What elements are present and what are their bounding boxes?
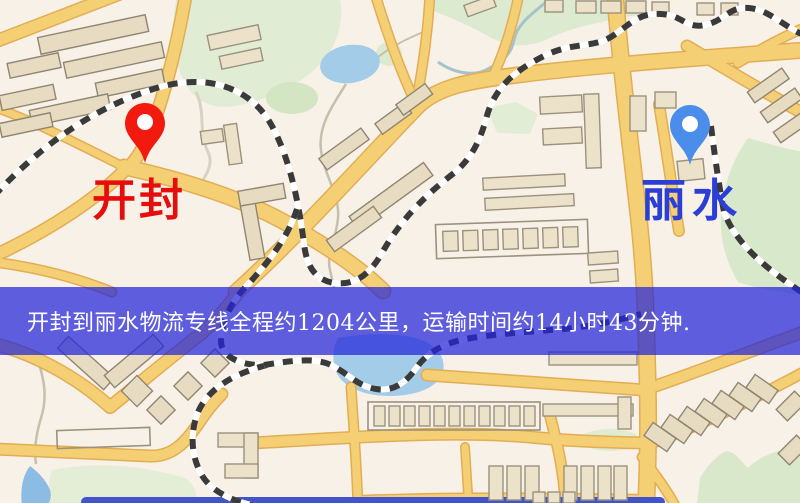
destination-city-label: 丽水 bbox=[641, 178, 743, 223]
logistics-route-map: 开封 丽水 开封到丽水物流专线全程约1204公里，运输时间约14小时43分钟. bbox=[0, 0, 800, 503]
destination-marker-pin bbox=[668, 103, 712, 167]
map-pin-icon bbox=[123, 101, 167, 165]
route-info-text: 开封到丽水物流专线全程约1204公里，运输时间约14小时43分钟. bbox=[27, 305, 690, 337]
map-canvas bbox=[0, 0, 800, 503]
route-info-banner: 开封到丽水物流专线全程约1204公里，运输时间约14小时43分钟. bbox=[0, 287, 800, 355]
map-pin-icon bbox=[668, 103, 712, 167]
origin-city-label: 开封 bbox=[92, 179, 186, 223]
origin-marker-pin bbox=[123, 101, 167, 165]
